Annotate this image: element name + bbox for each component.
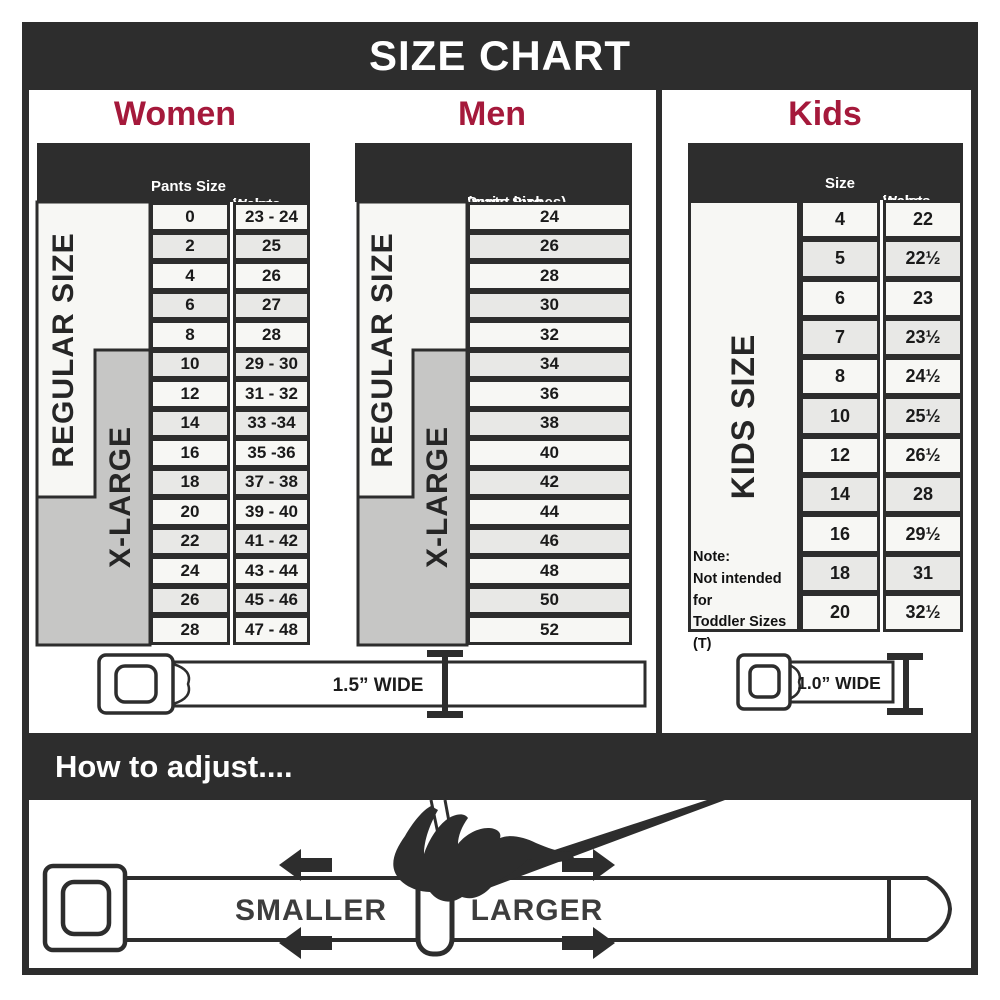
pants-size-cell: 0 — [150, 202, 230, 232]
pants-size-cell: 26 — [467, 232, 632, 262]
adult-belt-illustration: 1.5” WIDE — [95, 648, 655, 720]
men-regular-size-label: REGULAR SIZE — [366, 232, 399, 467]
kids-table-row: 8 24½ — [800, 357, 963, 396]
waist-cell: 33 -34 — [233, 409, 310, 439]
waist-cell: 45 - 46 — [233, 586, 310, 616]
waist-cell: 41 - 42 — [233, 527, 310, 557]
pants-size-cell: 4 — [150, 261, 230, 291]
section-divider — [656, 90, 662, 733]
pants-size-cell: 24 — [150, 556, 230, 586]
women-table-row: 16 35 -36 — [150, 438, 310, 468]
kids-col-size: Size — [800, 175, 880, 193]
waist-cell: 29 - 30 — [233, 350, 310, 380]
pants-size-cell: 28 — [467, 261, 632, 291]
kids-table-row: 6 23 — [800, 279, 963, 318]
men-table-row: 40 — [467, 438, 632, 468]
pants-size-cell: 10 — [150, 350, 230, 380]
buckle-button-icon — [63, 882, 109, 934]
pants-size-cell: 22 — [150, 527, 230, 557]
men-table-row: 36 — [467, 379, 632, 409]
size-cell: 14 — [800, 475, 880, 514]
size-cell: 7 — [800, 318, 880, 357]
kids-table-row: 14 28 — [800, 475, 963, 514]
women-table-row: 24 43 - 44 — [150, 556, 310, 586]
waist-cell: 47 - 48 — [233, 615, 310, 645]
kids-table-row: 5 22½ — [800, 239, 963, 278]
pants-size-cell: 26 — [150, 586, 230, 616]
belt-tip — [885, 878, 950, 940]
pants-size-cell: 42 — [467, 468, 632, 498]
women-xlarge-label: X-LARGE — [104, 426, 137, 568]
women-table-row: 2 25 — [150, 232, 310, 262]
waist-cell: 22 — [883, 200, 963, 239]
pants-size-cell: 52 — [467, 615, 632, 645]
kids-belt-width-label: 1.0” WIDE — [797, 673, 881, 693]
size-cell: 12 — [800, 436, 880, 475]
women-table: 0 23 - 24 2 25 4 26 6 27 8 28 10 29 - 30… — [150, 202, 310, 645]
women-table-row: 10 29 - 30 — [150, 350, 310, 380]
pants-size-cell: 36 — [467, 379, 632, 409]
women-table-row: 22 41 - 42 — [150, 527, 310, 557]
pants-size-cell: 18 — [150, 468, 230, 498]
larger-label: LARGER — [471, 894, 604, 927]
women-table-header: Pants Size Waist inches — [37, 143, 310, 202]
women-table-row: 8 28 — [150, 320, 310, 350]
women-table-row: 28 47 - 48 — [150, 615, 310, 645]
smaller-label: SMALLER — [235, 894, 387, 927]
pants-size-cell: 20 — [150, 497, 230, 527]
waist-cell: 23 - 24 — [233, 202, 310, 232]
men-table-row: 46 — [467, 527, 632, 557]
kids-table-row: 12 26½ — [800, 436, 963, 475]
waist-cell: 24½ — [883, 357, 963, 396]
pants-size-cell: 24 — [467, 202, 632, 232]
pants-size-cell: 48 — [467, 556, 632, 586]
pants-size-cell: 44 — [467, 497, 632, 527]
kids-note: Note: Not intended for Toddler Sizes (T) — [693, 547, 803, 656]
men-table-row: 24 — [467, 202, 632, 232]
men-table-row: 26 — [467, 232, 632, 262]
women-table-row: 26 45 - 46 — [150, 586, 310, 616]
men-size-group-label: REGULAR SIZE X-LARGE — [358, 202, 467, 645]
waist-cell: 25½ — [883, 396, 963, 435]
men-xlarge-label: X-LARGE — [421, 426, 454, 568]
waist-cell: 26½ — [883, 436, 963, 475]
men-table-row: 50 — [467, 586, 632, 616]
kids-heading: Kids — [710, 95, 940, 134]
waist-cell: 23½ — [883, 318, 963, 357]
waist-cell: 43 - 44 — [233, 556, 310, 586]
waist-cell: 27 — [233, 291, 310, 321]
pants-size-cell: 50 — [467, 586, 632, 616]
kids-table-header: Size Waist inches — [688, 143, 963, 200]
pants-size-cell: 38 — [467, 409, 632, 439]
women-table-row: 12 31 - 32 — [150, 379, 310, 409]
men-table-row: 28 — [467, 261, 632, 291]
waist-cell: 31 — [883, 554, 963, 593]
kids-table-row: 16 29½ — [800, 514, 963, 553]
men-table-row: 52 — [467, 615, 632, 645]
size-cell: 4 — [800, 200, 880, 239]
size-cell: 8 — [800, 357, 880, 396]
size-cell: 6 — [800, 279, 880, 318]
size-cell: 20 — [800, 593, 880, 632]
men-table-row: 44 — [467, 497, 632, 527]
women-regular-size-label: REGULAR SIZE — [47, 232, 80, 467]
size-cell: 18 — [800, 554, 880, 593]
waist-cell: 29½ — [883, 514, 963, 553]
waist-cell: 22½ — [883, 239, 963, 278]
women-heading: Women — [60, 95, 290, 134]
pants-size-cell: 34 — [467, 350, 632, 380]
men-table-row: 34 — [467, 350, 632, 380]
men-table-row: 42 — [467, 468, 632, 498]
kids-table: 4 22 5 22½ 6 23 7 23½ 8 24½ 10 25½ 12 26… — [800, 200, 963, 632]
women-col-pants-size: Pants Size — [147, 178, 230, 196]
waist-cell: 31 - 32 — [233, 379, 310, 409]
waist-cell: 39 - 40 — [233, 497, 310, 527]
men-table-row: 48 — [467, 556, 632, 586]
kids-belt-illustration: 1.0” WIDE — [735, 650, 935, 718]
kids-size-label: KIDS SIZE — [726, 333, 763, 498]
women-table-row: 20 39 - 40 — [150, 497, 310, 527]
size-cell: 5 — [800, 239, 880, 278]
size-cell: 10 — [800, 396, 880, 435]
waist-cell: 28 — [883, 475, 963, 514]
pants-size-cell: 16 — [150, 438, 230, 468]
waist-cell: 26 — [233, 261, 310, 291]
men-table-header: Pants Size (waist inches) — [355, 143, 632, 202]
adjust-heading: How to adjust.... — [55, 749, 293, 785]
pants-size-cell: 30 — [467, 291, 632, 321]
kids-table-row: 20 32½ — [800, 593, 963, 632]
men-table-row: 32 — [467, 320, 632, 350]
waist-cell: 35 -36 — [233, 438, 310, 468]
size-chart-banner: SIZE CHART — [22, 22, 978, 90]
pants-size-cell: 28 — [150, 615, 230, 645]
pants-size-cell: 40 — [467, 438, 632, 468]
page-title: SIZE CHART — [369, 32, 631, 80]
pants-size-cell: 46 — [467, 527, 632, 557]
adult-belt-width-label: 1.5” WIDE — [333, 675, 424, 696]
pants-size-cell: 14 — [150, 409, 230, 439]
pants-size-cell: 12 — [150, 379, 230, 409]
adjust-banner: How to adjust.... — [22, 733, 978, 800]
kids-table-row: 4 22 — [800, 200, 963, 239]
waist-cell: 37 - 38 — [233, 468, 310, 498]
men-table: 24 26 28 30 32 34 36 38 40 42 — [467, 202, 632, 645]
pants-size-cell: 32 — [467, 320, 632, 350]
pants-size-cell: 8 — [150, 320, 230, 350]
kids-table-row: 10 25½ — [800, 396, 963, 435]
pants-size-cell: 6 — [150, 291, 230, 321]
men-table-row: 30 — [467, 291, 632, 321]
buckle-button-icon — [750, 666, 779, 697]
pants-size-cell: 2 — [150, 232, 230, 262]
women-table-row: 0 23 - 24 — [150, 202, 310, 232]
men-heading: Men — [377, 95, 607, 134]
women-table-row: 14 33 -34 — [150, 409, 310, 439]
men-table-row: 38 — [467, 409, 632, 439]
waist-cell: 23 — [883, 279, 963, 318]
size-cell: 16 — [800, 514, 880, 553]
adjust-illustration: SMALLER LARGER — [29, 800, 971, 968]
women-table-row: 4 26 — [150, 261, 310, 291]
waist-cell: 28 — [233, 320, 310, 350]
women-table-row: 6 27 — [150, 291, 310, 321]
women-size-group-label: REGULAR SIZE X-LARGE — [37, 202, 150, 645]
kids-table-row: 7 23½ — [800, 318, 963, 357]
waist-cell: 32½ — [883, 593, 963, 632]
waist-cell: 25 — [233, 232, 310, 262]
buckle-button-icon — [116, 666, 156, 702]
kids-table-row: 18 31 — [800, 554, 963, 593]
women-table-row: 18 37 - 38 — [150, 468, 310, 498]
buckle-clasp-icon — [173, 664, 189, 704]
